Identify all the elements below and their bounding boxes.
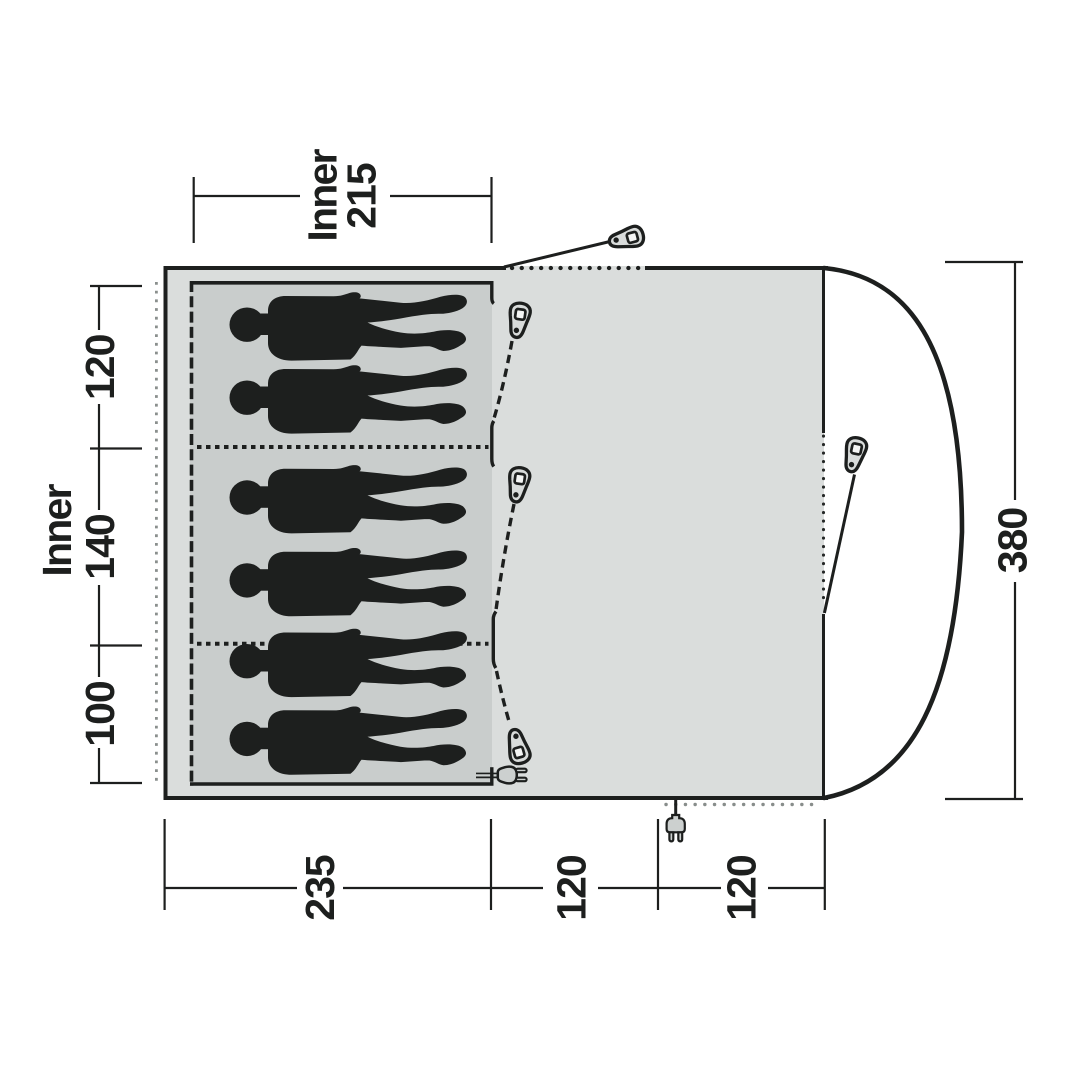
svg-text:Inner: Inner <box>34 484 80 577</box>
svg-text:100: 100 <box>77 681 123 747</box>
svg-text:120: 120 <box>549 855 595 921</box>
svg-text:380: 380 <box>990 508 1036 574</box>
svg-text:120: 120 <box>77 334 123 400</box>
svg-text:Inner215: Inner215 <box>300 149 385 242</box>
svg-text:140: 140 <box>77 514 123 580</box>
svg-text:120: 120 <box>718 855 764 921</box>
svg-text:235: 235 <box>297 855 343 921</box>
